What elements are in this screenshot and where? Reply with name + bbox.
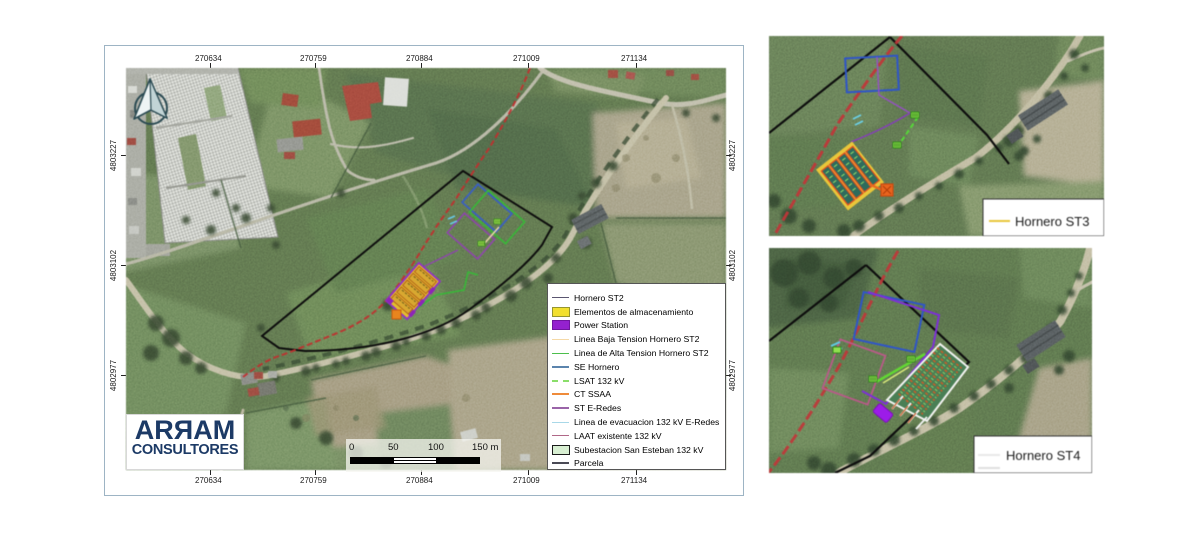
svg-text:Hornero ST4: Hornero ST4 — [1006, 448, 1080, 463]
svg-text:Hornero ST3: Hornero ST3 — [1015, 214, 1089, 229]
